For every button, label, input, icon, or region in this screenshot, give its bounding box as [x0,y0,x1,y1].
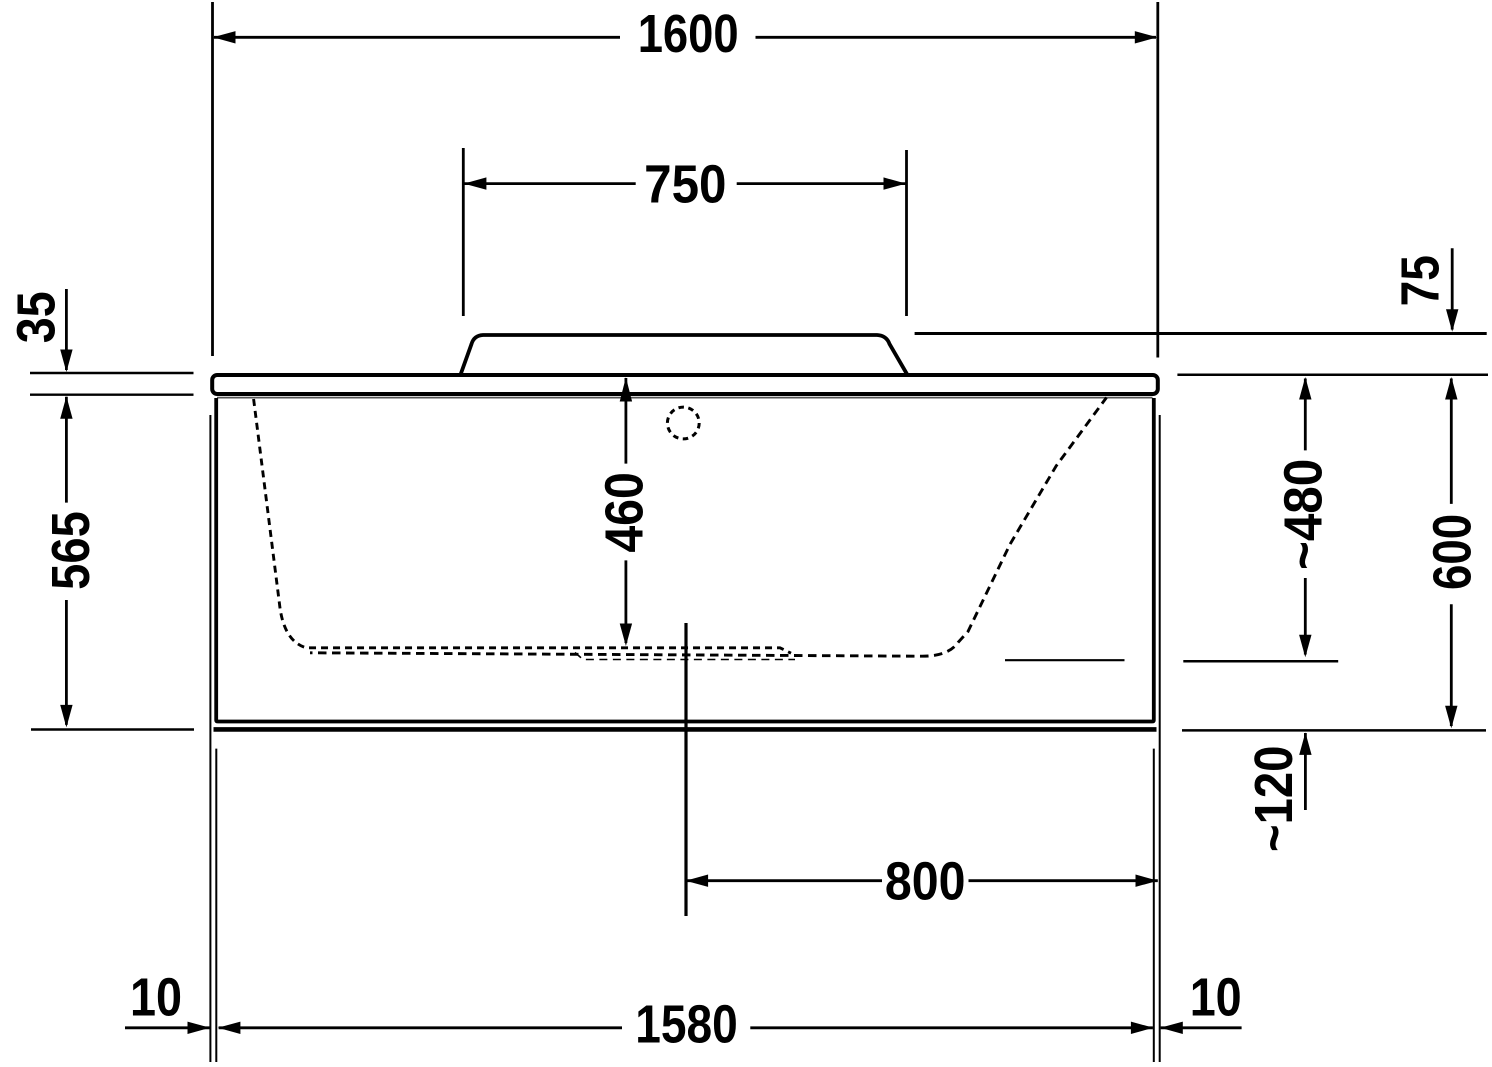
svg-text:~480: ~480 [1273,459,1333,570]
svg-text:1580: 1580 [635,995,738,1055]
svg-text:600: 600 [1423,514,1483,590]
svg-text:~120: ~120 [1244,746,1304,852]
svg-text:1600: 1600 [638,4,739,64]
svg-text:750: 750 [644,155,726,215]
svg-text:75: 75 [1391,255,1451,306]
svg-text:460: 460 [595,472,655,553]
svg-text:565: 565 [41,511,101,590]
svg-text:10: 10 [130,968,182,1028]
svg-text:10: 10 [1190,967,1242,1027]
svg-text:35: 35 [6,291,66,343]
svg-text:800: 800 [885,851,966,911]
